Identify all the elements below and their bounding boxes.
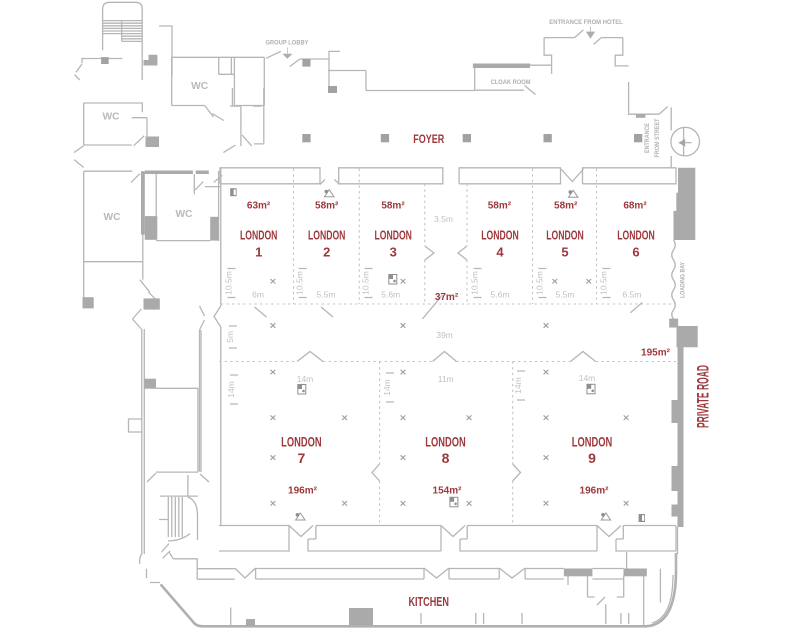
svg-text:58m²: 58m² <box>488 201 512 212</box>
svg-text:LONDON: LONDON <box>481 228 519 243</box>
svg-text:CLOAK ROOM: CLOAK ROOM <box>491 79 531 86</box>
svg-text:14m: 14m <box>382 379 392 396</box>
svg-text:LONDON: LONDON <box>617 228 655 243</box>
svg-text:5.5m: 5.5m <box>556 290 575 300</box>
svg-text:4: 4 <box>496 245 504 260</box>
svg-text:1: 1 <box>255 245 262 260</box>
svg-text:68m²: 68m² <box>623 201 647 212</box>
svg-text:10.5m: 10.5m <box>599 271 609 295</box>
svg-text:5.5m: 5.5m <box>317 290 336 300</box>
svg-text:LONDON: LONDON <box>308 228 346 243</box>
svg-text:2: 2 <box>323 245 330 260</box>
svg-text:14m: 14m <box>513 377 523 394</box>
svg-text:196m²: 196m² <box>580 486 610 497</box>
svg-text:LOADING BAY: LOADING BAY <box>680 261 687 298</box>
svg-text:10.5m: 10.5m <box>224 271 234 295</box>
svg-text:14m: 14m <box>579 373 596 383</box>
svg-text:58m²: 58m² <box>381 201 405 212</box>
svg-text:196m²: 196m² <box>288 486 318 497</box>
svg-text:37m²: 37m² <box>435 292 459 303</box>
svg-text:WC: WC <box>176 208 193 220</box>
svg-text:5: 5 <box>561 245 568 260</box>
svg-text:FOYER: FOYER <box>413 132 444 146</box>
svg-text:LONDON: LONDON <box>281 434 322 450</box>
svg-text:LONDON: LONDON <box>374 228 412 243</box>
svg-text:ENTRANCE FROM HOTEL: ENTRANCE FROM HOTEL <box>549 19 623 26</box>
svg-text:5.6m: 5.6m <box>381 290 400 300</box>
svg-text:5.6m: 5.6m <box>491 290 510 300</box>
svg-text:39m: 39m <box>436 330 453 340</box>
svg-text:KITCHEN: KITCHEN <box>408 595 449 609</box>
svg-text:7: 7 <box>298 450 306 466</box>
svg-text:8: 8 <box>442 450 450 466</box>
svg-text:3: 3 <box>390 245 397 260</box>
svg-text:LONDON: LONDON <box>546 228 584 243</box>
svg-text:10.5m: 10.5m <box>361 271 371 295</box>
svg-text:LONDON: LONDON <box>425 434 466 450</box>
svg-text:ENTRANCE: ENTRANCE <box>644 123 651 153</box>
svg-text:10.5m: 10.5m <box>295 271 305 295</box>
svg-text:LONDON: LONDON <box>572 434 613 450</box>
svg-text:WC: WC <box>104 211 121 223</box>
svg-text:63m²: 63m² <box>247 201 271 212</box>
svg-text:6.5m: 6.5m <box>623 290 642 300</box>
svg-text:6m: 6m <box>252 290 264 300</box>
svg-text:58m²: 58m² <box>315 201 339 212</box>
svg-text:GROUP LOBBY: GROUP LOBBY <box>266 40 310 47</box>
svg-text:58m²: 58m² <box>554 201 578 212</box>
svg-text:LONDON: LONDON <box>240 228 278 243</box>
svg-text:FROM STREET: FROM STREET <box>654 118 661 157</box>
svg-text:6: 6 <box>632 245 639 260</box>
svg-text:WC: WC <box>191 80 208 92</box>
svg-text:5m: 5m <box>225 331 235 343</box>
svg-text:9: 9 <box>588 450 596 466</box>
svg-text:11m: 11m <box>438 374 454 384</box>
svg-text:WC: WC <box>103 111 120 123</box>
svg-text:14m: 14m <box>226 381 236 398</box>
svg-text:10.5m: 10.5m <box>535 271 545 295</box>
svg-text:154m²: 154m² <box>433 486 463 497</box>
svg-text:PRIVATE ROAD: PRIVATE ROAD <box>694 365 713 428</box>
svg-text:14m: 14m <box>297 374 314 384</box>
svg-text:3.5m: 3.5m <box>434 214 453 224</box>
svg-text:195m²: 195m² <box>641 348 671 359</box>
svg-text:10.5m: 10.5m <box>470 271 480 295</box>
